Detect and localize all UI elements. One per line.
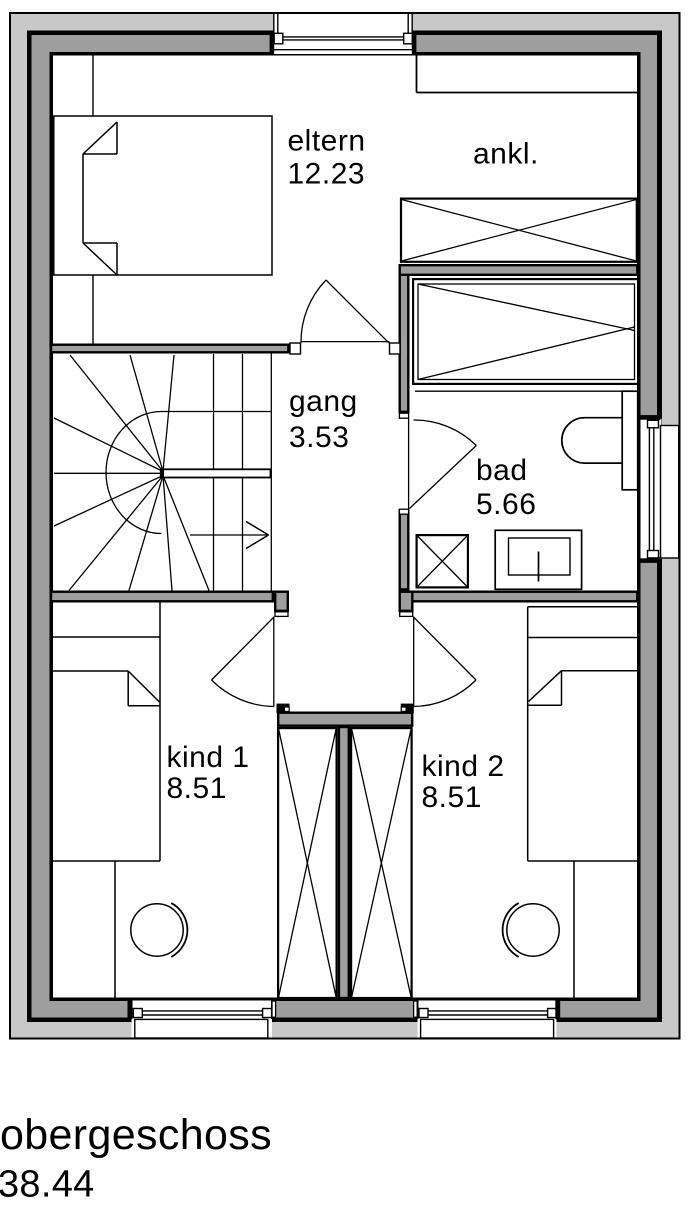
svg-text:bad: bad	[476, 454, 528, 487]
svg-text:eltern: eltern	[288, 125, 366, 158]
svg-text:3.53: 3.53	[289, 421, 349, 454]
svg-text:8.51: 8.51	[167, 772, 227, 805]
svg-text:38.44: 38.44	[0, 1164, 95, 1206]
svg-text:8.51: 8.51	[422, 781, 482, 814]
svg-text:12.23: 12.23	[288, 158, 366, 191]
svg-text:kind 2: kind 2	[422, 750, 505, 783]
svg-text:5.66: 5.66	[476, 488, 536, 521]
svg-text:gang: gang	[289, 385, 358, 418]
svg-text:ankl.: ankl.	[473, 138, 539, 171]
svg-text:kind 1: kind 1	[167, 741, 250, 774]
svg-text:obergeschoss: obergeschoss	[0, 1111, 272, 1159]
